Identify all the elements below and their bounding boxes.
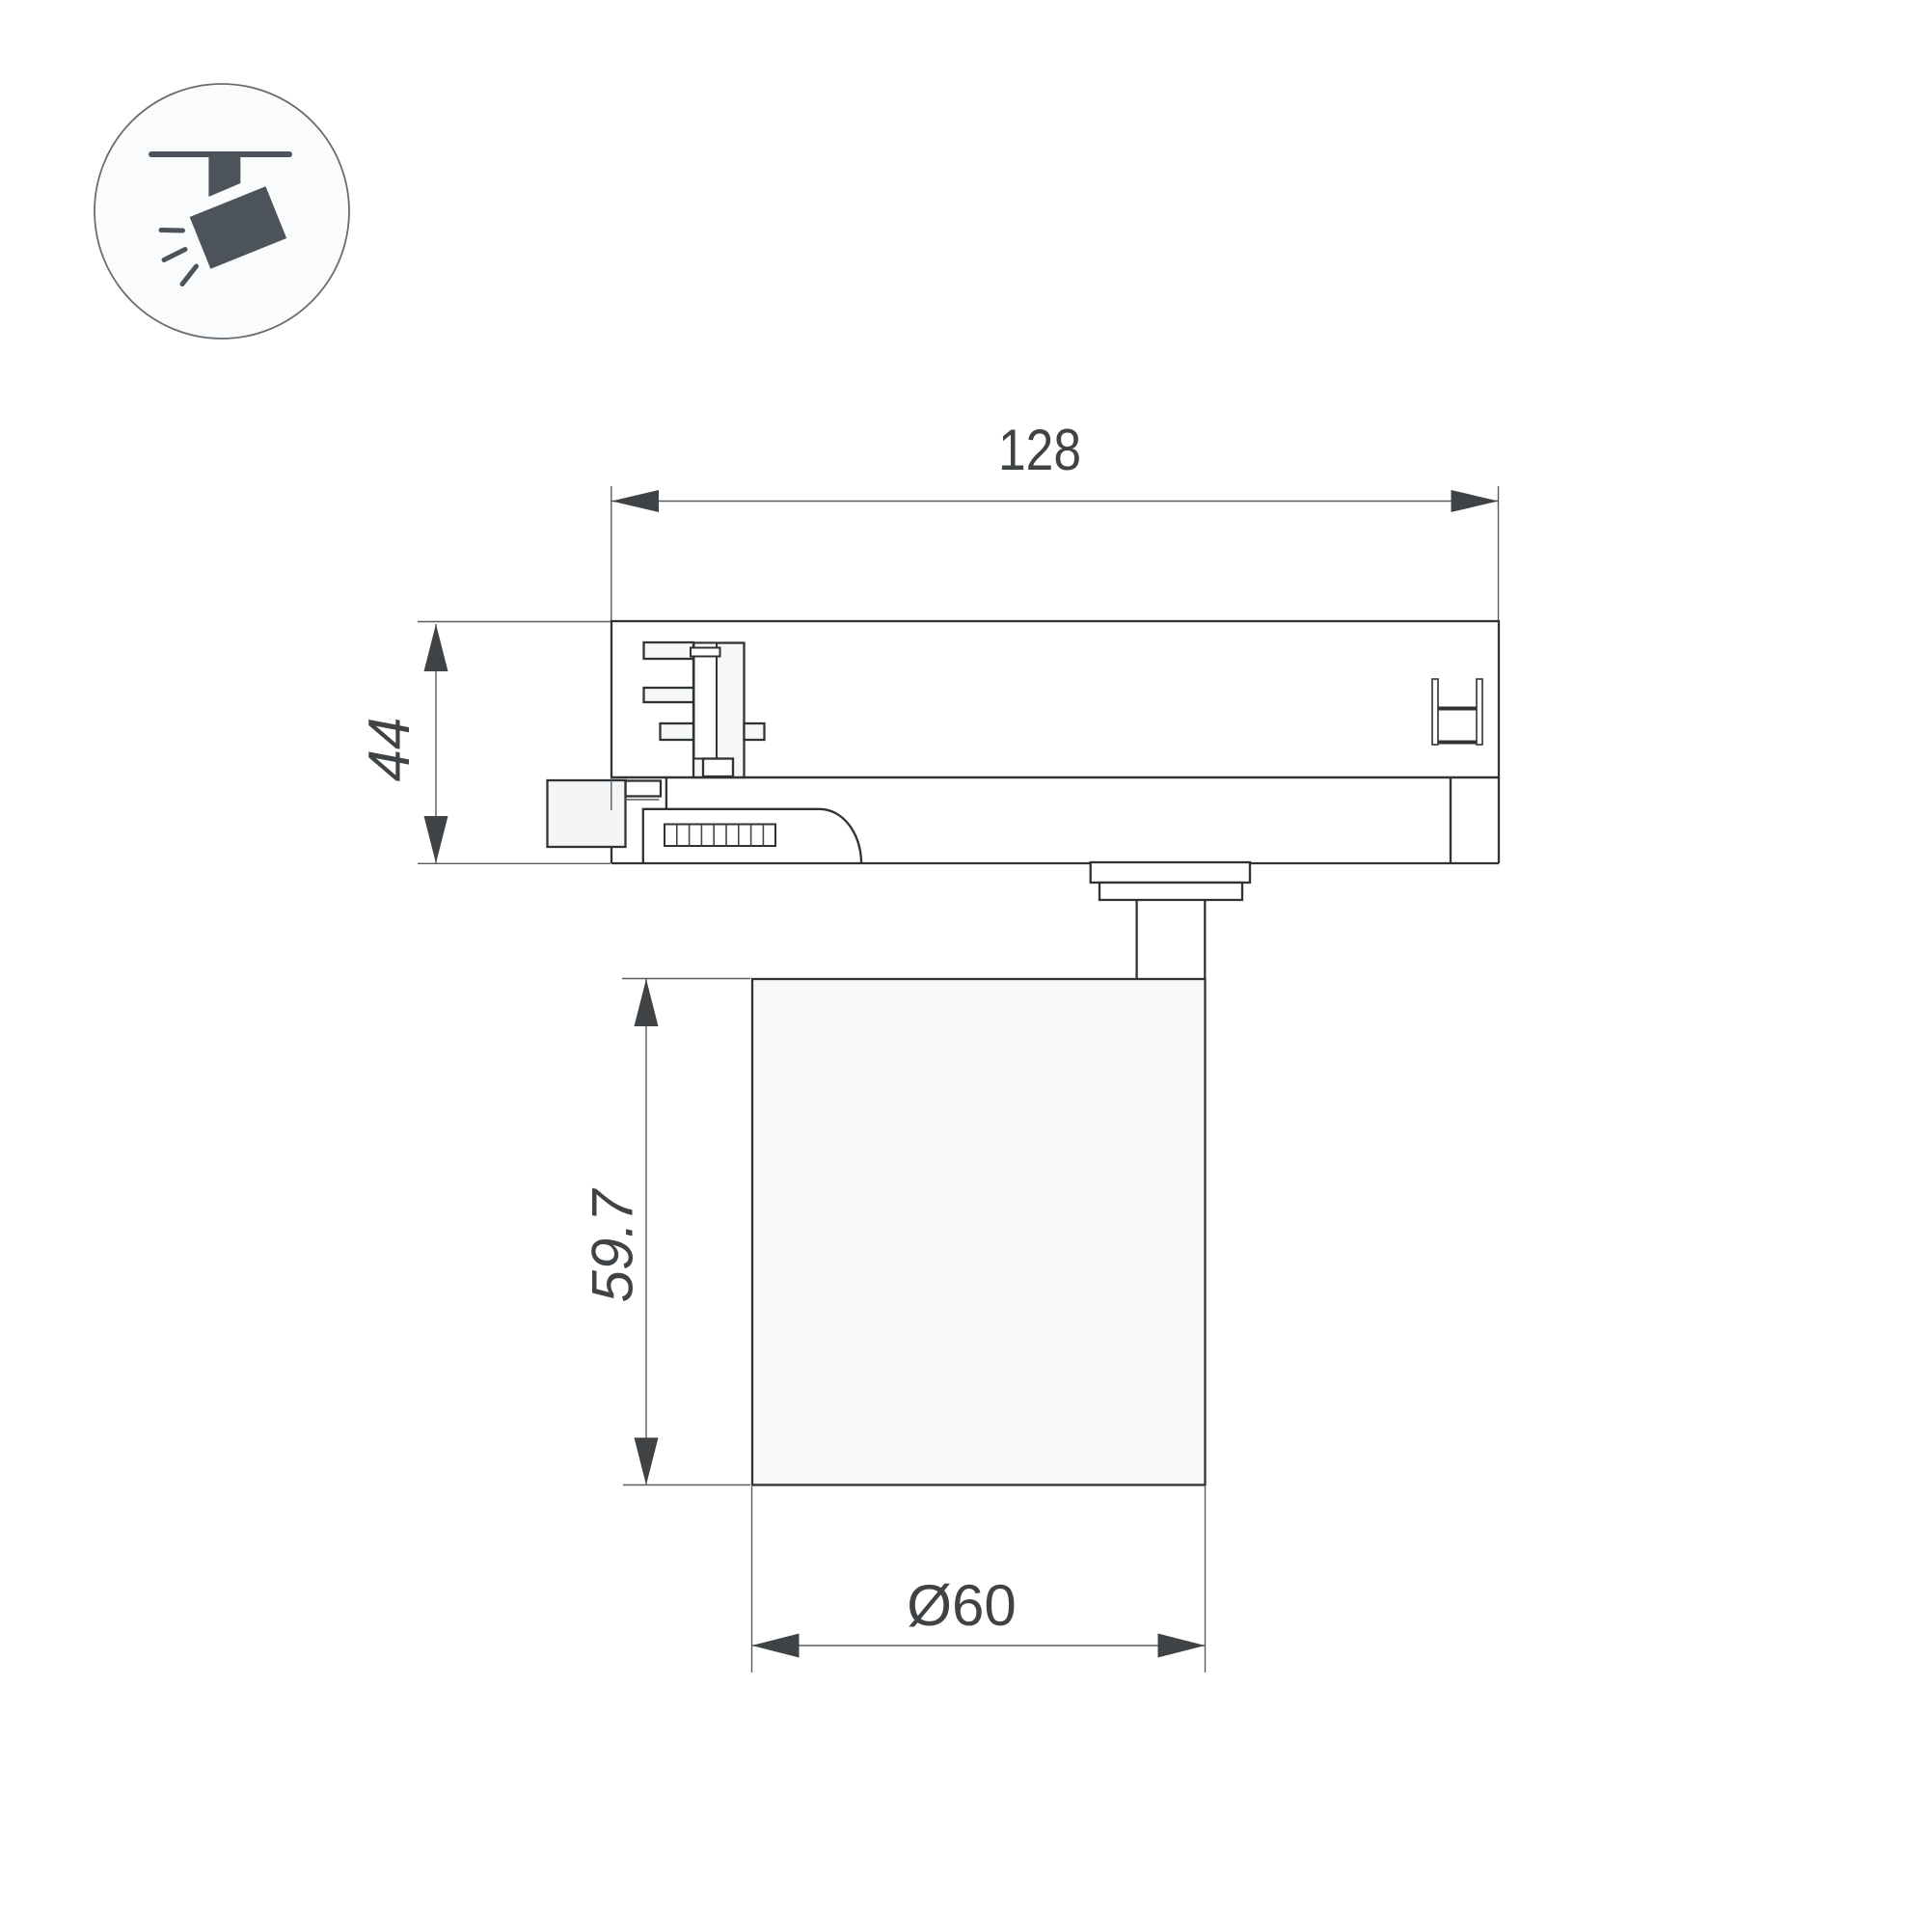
svg-text:44: 44 bbox=[357, 718, 421, 782]
svg-text:Ø60: Ø60 bbox=[907, 1573, 1016, 1638]
svg-text:128: 128 bbox=[998, 418, 1081, 482]
svg-text:59.7: 59.7 bbox=[581, 1187, 645, 1302]
